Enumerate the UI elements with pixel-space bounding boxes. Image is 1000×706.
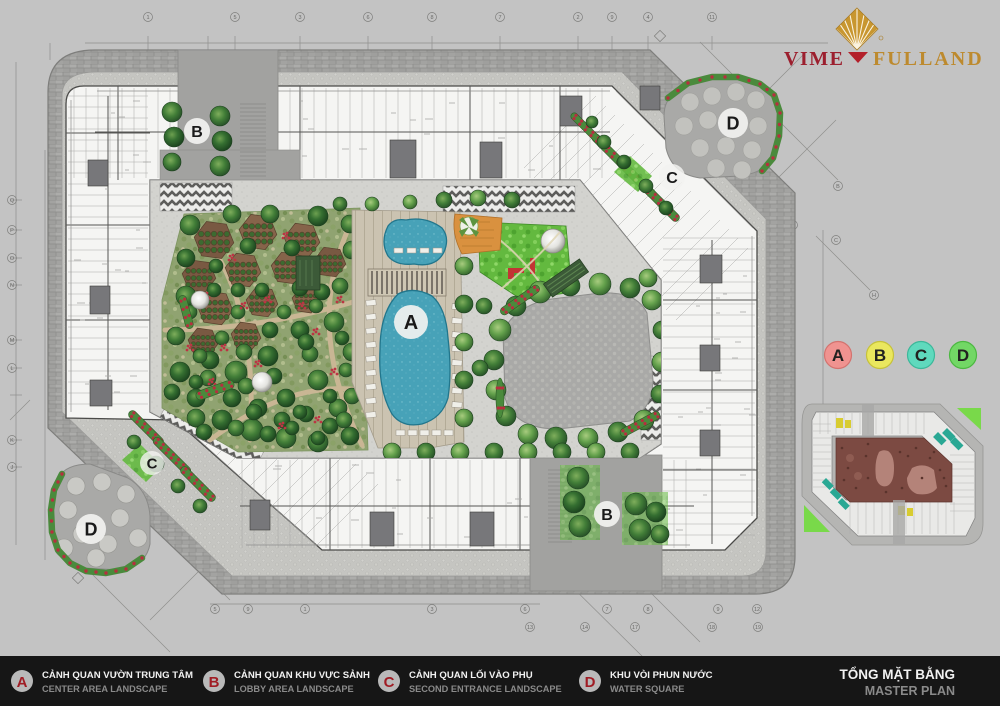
svg-text:VIME: VIME (784, 48, 844, 70)
svg-text:9: 9 (716, 607, 719, 613)
svg-text:H: H (872, 293, 876, 299)
svg-text:D: D (957, 346, 969, 365)
svg-text:MASTER PLAN: MASTER PLAN (865, 684, 955, 698)
svg-text:9: 9 (610, 15, 613, 21)
svg-text:B: B (874, 346, 886, 365)
svg-text:8: 8 (430, 15, 433, 21)
svg-text:2: 2 (576, 15, 579, 21)
svg-text:A: A (832, 346, 844, 365)
svg-text:M: M (10, 338, 15, 344)
svg-text:8: 8 (646, 607, 649, 613)
svg-text:FULLAND: FULLAND (873, 48, 984, 70)
svg-text:CẢNH QUAN KHU VỰC SẢNH: CẢNH QUAN KHU VỰC SẢNH (234, 669, 370, 681)
svg-text:D: D (585, 674, 596, 691)
svg-text:A: A (404, 312, 418, 334)
svg-text:CENTER AREA LANDSCAPE: CENTER AREA LANDSCAPE (42, 684, 167, 694)
svg-text:C: C (834, 238, 838, 244)
svg-text:4: 4 (646, 15, 649, 21)
svg-text:7: 7 (605, 607, 608, 613)
svg-text:KHU VÒI PHUN NƯỚC: KHU VÒI PHUN NƯỚC (610, 669, 713, 681)
svg-text:6: 6 (366, 15, 369, 21)
svg-text:C: C (666, 170, 678, 187)
svg-text:17: 17 (632, 625, 638, 631)
svg-text:B: B (191, 124, 203, 141)
svg-text:LOBBY AREA LANDSCAPE: LOBBY AREA LANDSCAPE (234, 684, 354, 694)
svg-text:CẢNH QUAN VƯỜN TRUNG TÂM: CẢNH QUAN VƯỜN TRUNG TÂM (42, 669, 193, 681)
svg-text:L: L (10, 366, 13, 372)
svg-text:1: 1 (303, 607, 306, 613)
svg-text:D: D (727, 113, 740, 133)
svg-text:9: 9 (246, 607, 249, 613)
svg-text:N: N (10, 283, 14, 289)
svg-text:J: J (11, 465, 14, 471)
svg-text:18: 18 (709, 625, 715, 631)
svg-text:B: B (836, 184, 840, 190)
svg-text:D: D (85, 519, 98, 539)
svg-text:C: C (384, 674, 395, 691)
svg-text:13: 13 (527, 625, 533, 631)
svg-text:SECOND ENTRANCE LANDSCAPE: SECOND ENTRANCE LANDSCAPE (409, 684, 562, 694)
svg-text:CẢNH QUAN LỐI VÀO PHỤ: CẢNH QUAN LỐI VÀO PHỤ (409, 669, 533, 681)
svg-text:14: 14 (582, 625, 588, 631)
svg-text:7: 7 (498, 15, 501, 21)
svg-text:Q: Q (10, 198, 15, 204)
svg-text:B: B (209, 674, 220, 691)
svg-text:P: P (10, 228, 14, 234)
svg-text:C: C (147, 455, 158, 472)
svg-text:O: O (10, 256, 15, 262)
svg-text:B: B (601, 507, 613, 524)
svg-text:19: 19 (755, 625, 761, 631)
svg-text:11: 11 (709, 15, 715, 21)
svg-text:5: 5 (213, 607, 216, 613)
svg-text:5: 5 (233, 15, 236, 21)
svg-text:WATER SQUARE: WATER SQUARE (610, 684, 684, 694)
svg-text:1: 1 (146, 15, 149, 21)
svg-text:12: 12 (754, 607, 760, 613)
svg-text:K: K (10, 438, 14, 444)
svg-text:3: 3 (298, 15, 301, 21)
svg-text:3: 3 (430, 607, 433, 613)
svg-text:C: C (915, 346, 927, 365)
svg-text:A: A (17, 674, 28, 691)
svg-text:TỔNG MẶT BẰNG: TỔNG MẶT BẰNG (840, 667, 956, 682)
svg-text:6: 6 (523, 607, 526, 613)
